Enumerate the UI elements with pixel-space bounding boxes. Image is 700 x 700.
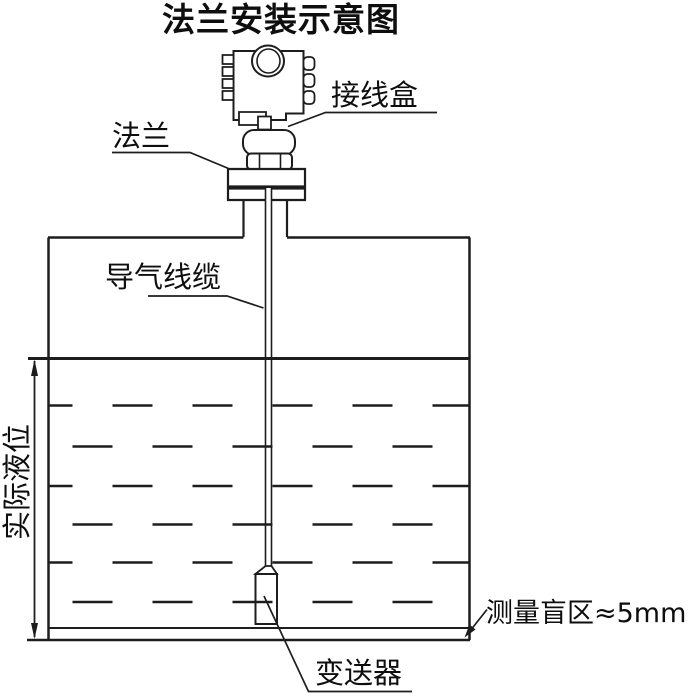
hex-nut bbox=[247, 154, 292, 170]
transmitter-head bbox=[223, 46, 315, 170]
junction-box-label: 接线盒 bbox=[331, 80, 418, 110]
air-cable-leader bbox=[148, 296, 264, 308]
cable bbox=[265, 188, 271, 568]
blind-zone-arrow bbox=[465, 610, 488, 638]
blind-zone-label: 测量盲区≈5mm bbox=[486, 600, 686, 628]
arrow-down-head bbox=[31, 623, 38, 639]
terminal-knob bbox=[258, 117, 271, 130]
transmitter-label: 变送器 bbox=[315, 658, 402, 688]
arrow-up-head bbox=[31, 360, 38, 377]
right-cap-ribs bbox=[304, 57, 315, 104]
flange-label: 法兰 bbox=[112, 121, 170, 151]
process-connector bbox=[243, 130, 295, 155]
diagram-title: 法兰安装示意图 bbox=[150, 3, 412, 38]
air-cable-label: 导气线缆 bbox=[105, 262, 221, 292]
junction-box-leader bbox=[288, 113, 437, 127]
left-cap-ribs bbox=[223, 55, 234, 100]
flange-plate bbox=[228, 169, 305, 187]
probe-taper bbox=[256, 566, 278, 574]
tank bbox=[27, 238, 470, 641]
flange-installation-diagram: 法兰安装示意图 接线盒 法兰 导气线缆 实际液位 变送器 测量盲区≈5mm bbox=[0, 0, 700, 700]
flange-leader bbox=[112, 153, 229, 169]
actual-level-label: 实际液位 bbox=[2, 412, 32, 552]
